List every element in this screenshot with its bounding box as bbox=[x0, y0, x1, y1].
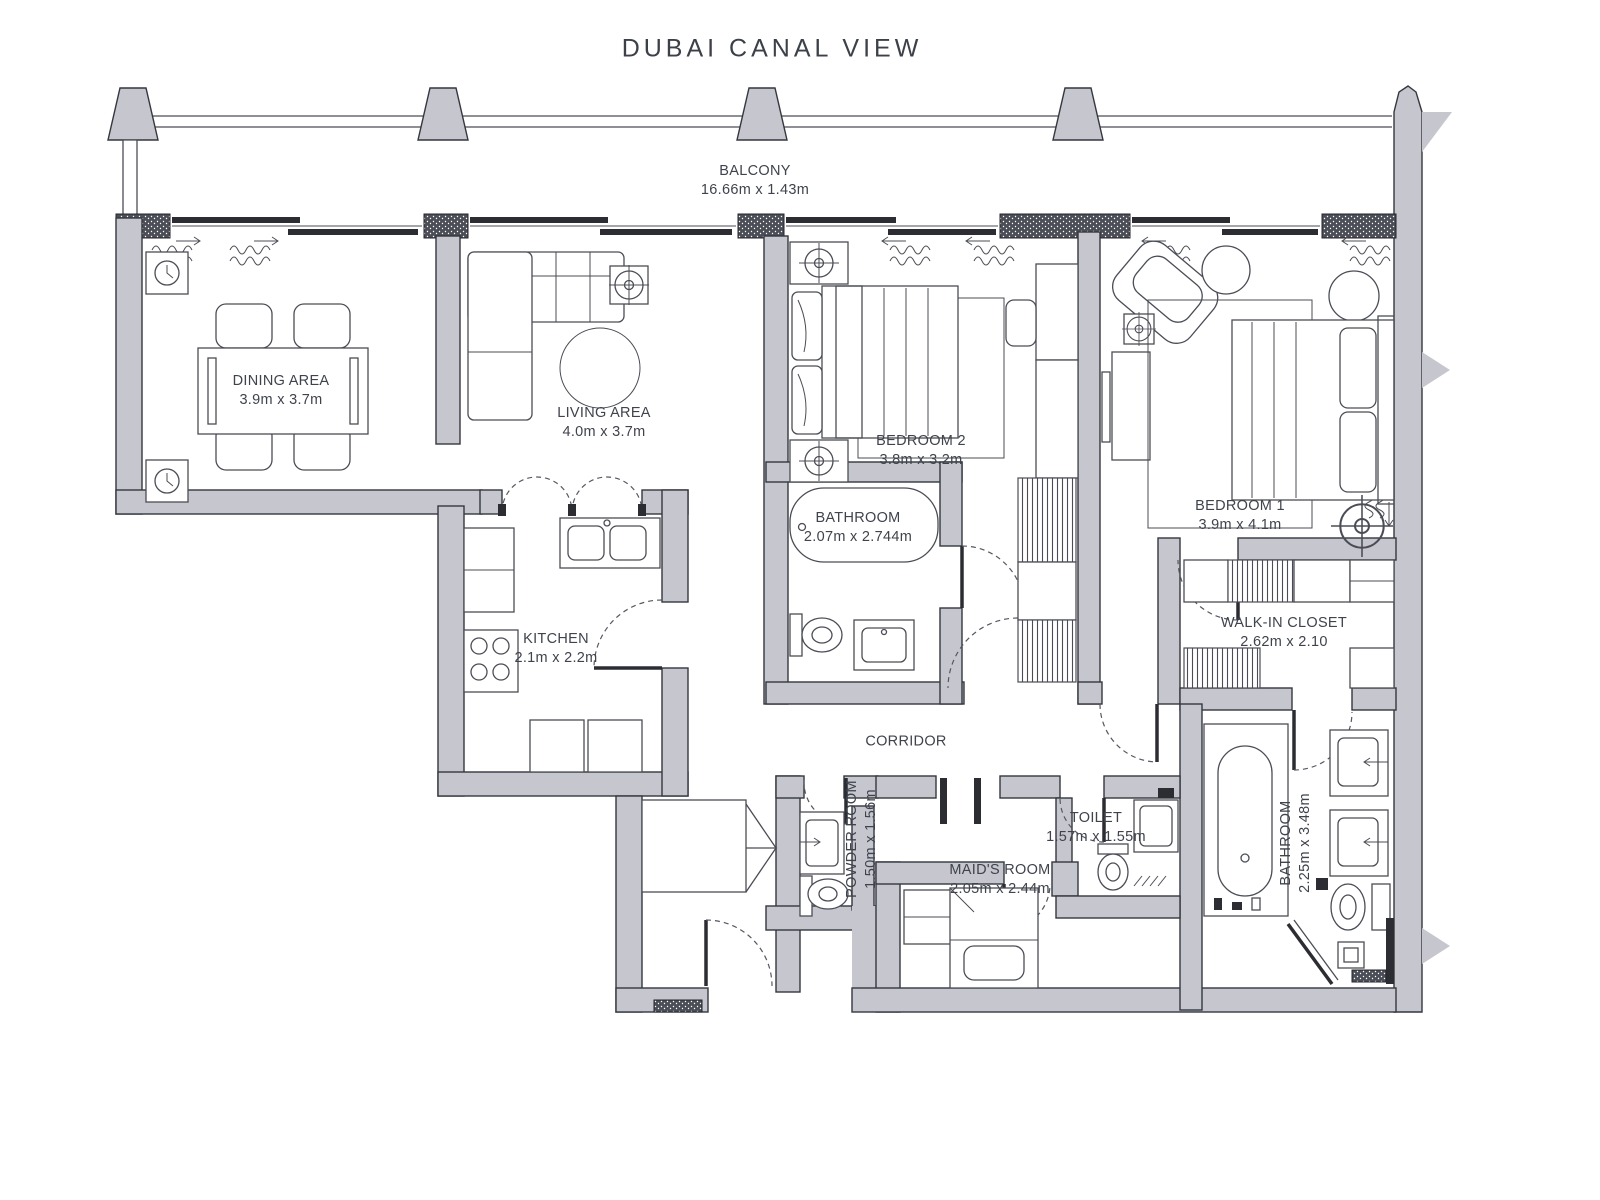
toilet-icon bbox=[790, 614, 802, 656]
room-label-balcony: BALCONY 16.66m x 1.43m bbox=[701, 162, 809, 200]
right-exterior-wall bbox=[1394, 86, 1452, 1012]
room-label-bathroom2: BATHROOM 2.07m x 2.744m bbox=[804, 509, 912, 547]
stove-icon bbox=[464, 630, 518, 692]
room-name: WALK-IN CLOSET bbox=[1221, 614, 1347, 633]
room-label-bathroom1: BATHROOM 2.25m x 3.48m bbox=[1277, 793, 1315, 893]
entry-closet bbox=[642, 800, 776, 892]
powder-room-fixtures bbox=[800, 812, 848, 916]
room-label-toilet: TOILET 1.57m x 1.55m bbox=[1046, 809, 1146, 847]
room-name: BATHROOM bbox=[804, 509, 912, 528]
room-name: MAID'S ROOM bbox=[949, 861, 1050, 880]
room-dims: 3.9m x 3.7m bbox=[233, 391, 330, 410]
room-label-bedroom1: BEDROOM 1 3.9m x 4.1m bbox=[1195, 497, 1285, 535]
pillow-icon bbox=[792, 292, 822, 360]
floorplan-page: DUBAI CANAL VIEW BALCONY 16.66m x 1.43m … bbox=[0, 0, 1600, 1200]
closet-unit-icon bbox=[1294, 560, 1350, 602]
room-label-maids-room: MAID'S ROOM 2.05m x 2.44m bbox=[949, 861, 1050, 899]
room-dims: 3.9m x 4.1m bbox=[1195, 516, 1285, 535]
room-dims: 2.07m x 2.744m bbox=[804, 528, 912, 547]
room-dims: 2.25m x 3.48m bbox=[1296, 793, 1315, 893]
pillow-icon bbox=[1340, 328, 1376, 408]
towel-rail-icon bbox=[1134, 876, 1166, 886]
room-name: TOILET bbox=[1046, 809, 1146, 828]
room-label-powder-room: POWDER ROOM 1.50m x 1.56m bbox=[843, 780, 881, 898]
living-furniture bbox=[468, 252, 649, 420]
room-dims: 4.0m x 3.7m bbox=[557, 423, 651, 442]
bifold-door-icon bbox=[746, 804, 776, 892]
maids-room-furniture bbox=[904, 888, 1038, 988]
entrance-threshold bbox=[654, 1000, 702, 1012]
room-label-corridor: CORRIDOR bbox=[865, 732, 946, 751]
pillow-icon bbox=[1340, 412, 1376, 492]
chair-icon bbox=[294, 304, 350, 348]
dresser-icon bbox=[1018, 562, 1076, 620]
pillow-icon bbox=[964, 946, 1024, 980]
cabinet-icon bbox=[588, 720, 642, 772]
front-wall-sliding-doors bbox=[116, 214, 1396, 238]
closet-hanging-icon bbox=[1018, 620, 1076, 682]
closet-unit-icon bbox=[1184, 560, 1228, 602]
round-table-icon bbox=[1329, 271, 1379, 321]
tv-console-icon bbox=[1112, 352, 1150, 460]
room-dims: 1.57m x 1.55m bbox=[1046, 828, 1146, 847]
rug-icon bbox=[560, 328, 640, 408]
armchair-icon bbox=[1105, 234, 1225, 351]
column-stem bbox=[123, 140, 137, 220]
room-label-bedroom2: BEDROOM 2 3.8m x 3.2m bbox=[876, 432, 966, 470]
bed-icon bbox=[822, 286, 958, 438]
closet-unit-icon bbox=[1350, 648, 1394, 688]
room-name: CORRIDOR bbox=[865, 732, 946, 751]
room-dims: 2.62m x 2.10 bbox=[1221, 633, 1347, 652]
room-name: POWDER ROOM bbox=[843, 780, 862, 898]
room-dims: 16.66m x 1.43m bbox=[701, 181, 809, 200]
bathtub-platform bbox=[1204, 724, 1288, 916]
closet-hanging-icon bbox=[1018, 478, 1076, 562]
closet-unit-icon bbox=[642, 800, 746, 892]
room-dims: 3.8m x 3.2m bbox=[876, 451, 966, 470]
balcony-columns bbox=[108, 88, 1103, 220]
room-dims: 2.1m x 2.2m bbox=[514, 649, 597, 668]
room-name: BALCONY bbox=[701, 162, 809, 181]
room-label-kitchen: KITCHEN 2.1m x 2.2m bbox=[514, 630, 597, 668]
closet-hanging-icon bbox=[1228, 560, 1294, 602]
plan-title: DUBAI CANAL VIEW bbox=[622, 35, 923, 64]
room-name: BEDROOM 2 bbox=[876, 432, 966, 451]
room-name: LIVING AREA bbox=[557, 404, 651, 423]
room-name: KITCHEN bbox=[514, 630, 597, 649]
cabinet-icon bbox=[530, 720, 584, 772]
wardrobe-icon bbox=[1036, 264, 1078, 360]
room-name: DINING AREA bbox=[233, 372, 330, 391]
wardrobe-icon bbox=[1036, 360, 1078, 478]
chair-icon bbox=[216, 304, 272, 348]
room-dims: 1.50m x 1.56m bbox=[862, 780, 881, 898]
room-label-living: LIVING AREA 4.0m x 3.7m bbox=[557, 404, 651, 442]
room-name: BEDROOM 1 bbox=[1195, 497, 1285, 516]
room-label-dining: DINING AREA 3.9m x 3.7m bbox=[233, 372, 330, 410]
closet-hanging-icon bbox=[1184, 648, 1260, 688]
room-label-walk-in-closet: WALK-IN CLOSET 2.62m x 2.10 bbox=[1221, 614, 1347, 652]
ottoman-icon bbox=[1202, 246, 1250, 294]
room-dims: 2.05m x 2.44m bbox=[949, 880, 1050, 899]
tv-icon bbox=[1006, 300, 1036, 346]
pillow-icon bbox=[792, 366, 822, 434]
room-name: BATHROOM bbox=[1277, 793, 1296, 893]
